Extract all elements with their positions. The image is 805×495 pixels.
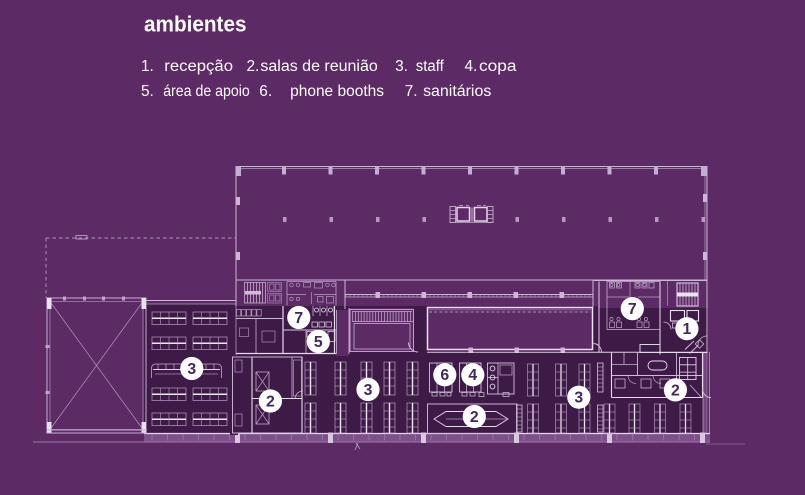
svg-text:3: 3 — [574, 390, 583, 407]
svg-text:2: 2 — [470, 409, 479, 426]
svg-text:7: 7 — [294, 310, 303, 327]
svg-text:5.área de apoio6.phone booths7: 5.área de apoio6.phone booths7.sanitário… — [141, 83, 492, 100]
svg-text:4: 4 — [468, 367, 477, 384]
svg-text:6: 6 — [440, 367, 449, 384]
svg-text:ambientes: ambientes — [144, 12, 247, 37]
svg-text:2: 2 — [671, 382, 680, 399]
svg-text:1: 1 — [683, 321, 692, 338]
svg-text:7: 7 — [628, 301, 637, 318]
svg-text:3: 3 — [364, 382, 373, 399]
svg-text:3: 3 — [187, 361, 196, 378]
svg-text:2: 2 — [266, 393, 275, 410]
svg-text:5: 5 — [314, 334, 323, 351]
